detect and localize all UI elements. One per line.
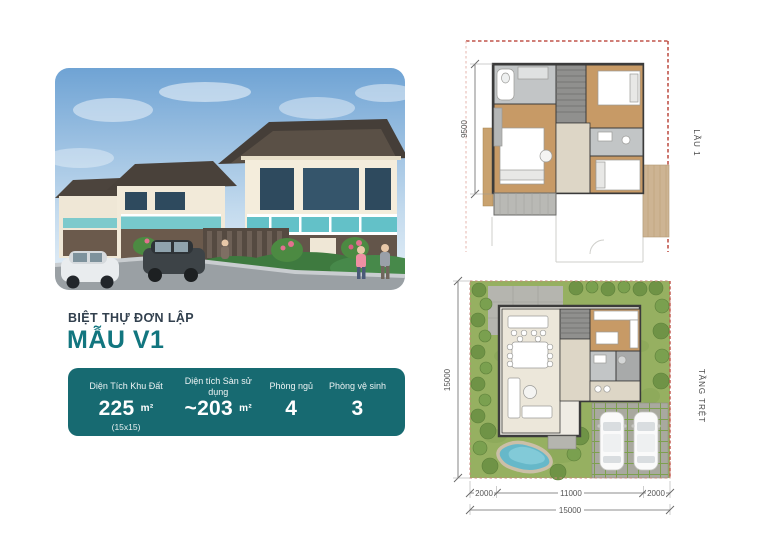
listing-model-title: MẪU V1: [67, 326, 164, 355]
listing-category: BIỆT THỰ ĐƠN LẬP: [68, 311, 194, 325]
villa-photo-illustration: [55, 68, 405, 290]
utility-room: [616, 351, 640, 381]
car-1: [597, 412, 626, 470]
floor-plan-upper: 9500 LẦU 1: [440, 28, 710, 270]
dim-2000-left: 2000: [475, 489, 493, 498]
spec-value: ~203 m²: [185, 397, 252, 421]
plan-label-tang-tret: TẦNG TRỆT: [697, 369, 707, 423]
spec-floor-area: Diện tích Sàn sử dụng ~203 m²: [174, 368, 262, 436]
floor-plan-lower: 15000 2000 11000 2000: [440, 276, 710, 534]
roof-deck: [643, 165, 669, 237]
spec-bedrooms: Phòng ngủ 4: [262, 368, 320, 436]
hallway: [556, 123, 590, 193]
spec-label: Diện Tích Khu Đất: [89, 376, 162, 397]
dim-15000-left: 15000: [443, 368, 452, 391]
floor-plan-lower-drawing: 15000 2000 11000 2000: [440, 276, 710, 534]
hallway: [560, 339, 590, 401]
entry-porch: [548, 436, 576, 449]
car-2: [631, 412, 660, 470]
plan-label-lau1: LẦU 1: [692, 129, 702, 156]
dim-15000-total: 15000: [559, 506, 582, 515]
villa-photo: [55, 68, 405, 290]
brochure-page: BIỆT THỰ ĐƠN LẬP MẪU V1 Diện Tích Khu Đấ…: [0, 0, 768, 559]
spec-bathrooms: Phòng vệ sinh 3: [320, 368, 395, 436]
dim-11000: 11000: [560, 489, 582, 498]
spec-label: Phòng ngủ: [269, 376, 313, 397]
spec-note: (15x15): [112, 422, 141, 432]
dimension-bottom-total: 15000: [466, 504, 674, 515]
spec-value: 4: [285, 397, 297, 421]
dimension-left: 15000: [443, 277, 470, 482]
spec-label: Diện tích Sàn sử dụng: [183, 376, 253, 397]
spec-value: 225 m²: [99, 397, 154, 421]
dim-9500: 9500: [460, 120, 469, 138]
staircase: [560, 309, 590, 339]
spec-unit: m²: [141, 403, 154, 414]
dim-2000-right: 2000: [647, 489, 665, 498]
side-deck: [483, 128, 493, 206]
spec-label: Phòng vệ sinh: [329, 376, 386, 397]
spec-land-area: Diện Tích Khu Đất 225 m² (15x15): [78, 368, 174, 436]
spec-card: Diện Tích Khu Đất 225 m² (15x15) Diện tí…: [68, 368, 405, 436]
balcony: [494, 193, 556, 215]
dimension-bottom-segments: 2000 11000 2000: [466, 481, 674, 498]
floor-plan-upper-drawing: 9500 LẦU 1: [440, 28, 710, 270]
spec-unit: m²: [239, 403, 252, 414]
spec-value: 3: [352, 397, 364, 421]
